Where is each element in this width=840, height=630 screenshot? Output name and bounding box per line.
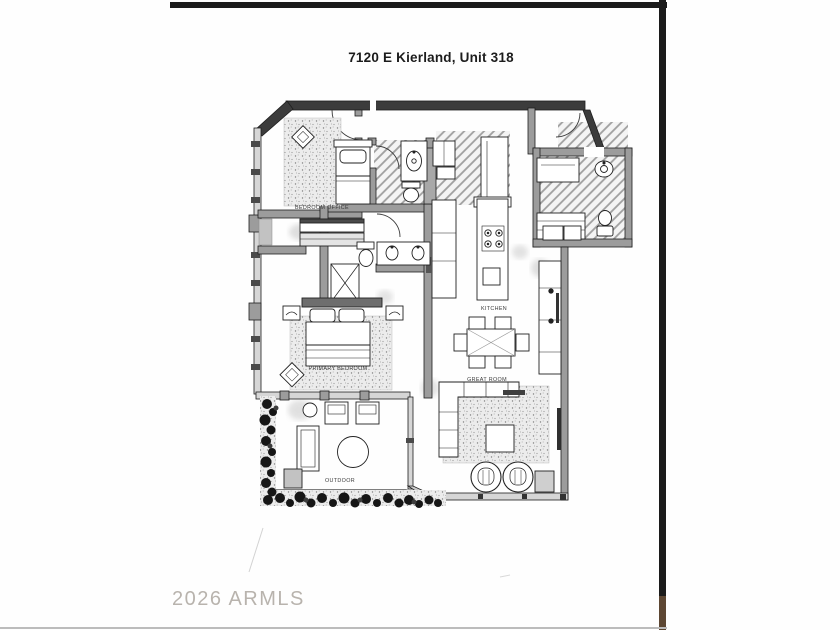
dining-chair [495, 356, 511, 368]
scan-corner-smudge [659, 596, 666, 630]
dining-chair [516, 334, 529, 351]
island-sink [483, 268, 500, 285]
coffee-table [486, 425, 514, 452]
scan-right-bar [659, 0, 666, 630]
entry-foyer [481, 137, 508, 201]
wall-cabinets [539, 261, 561, 374]
dining-chair [495, 317, 511, 329]
scan-top-bar [170, 2, 667, 8]
suite-door-arc [377, 214, 400, 237]
room-label-great-room: GREAT ROOM [467, 377, 507, 383]
armls-watermark: 2026 ARMLS [172, 588, 305, 611]
scan-scratch [500, 575, 510, 577]
outdoor-patio [260, 396, 447, 508]
barrel-chair [503, 462, 533, 492]
scan-bottom-line [0, 627, 667, 629]
shower-closet [331, 264, 359, 302]
bath2-vanity [537, 158, 579, 182]
left-window-wall [254, 128, 261, 394]
dining-chair [454, 334, 467, 351]
nightstand [386, 306, 403, 320]
planter-box [284, 469, 302, 488]
patio-table [338, 437, 369, 468]
scan-scratch [249, 528, 263, 572]
toilet-fixture [357, 242, 374, 267]
top-exterior-wall [286, 101, 585, 110]
tv [557, 408, 561, 450]
barrel-chair [471, 462, 501, 492]
kitchen-counter [432, 200, 456, 298]
side-table [535, 471, 554, 492]
office-bed [334, 140, 372, 204]
scanned-floor-plan-page: 7120 E Kierland, Unit 318 [0, 0, 840, 630]
room-label-primary-bedroom: PRIMARY BEDROOM [309, 366, 368, 372]
nightstand [283, 306, 300, 320]
bedroom-office [259, 118, 372, 246]
dining-chair [469, 356, 485, 368]
patio-side-table [303, 403, 317, 417]
toilet-fixture [402, 182, 420, 202]
coat-closet [481, 137, 508, 201]
dining-chair [469, 317, 485, 329]
dining-set [454, 317, 529, 368]
right-wall [561, 247, 568, 500]
office-rug [284, 118, 341, 206]
floor-plan: BEDROOM OFFICE PRIMARY BEDROOM KITCHEN G… [0, 0, 840, 630]
room-label-kitchen: KITCHEN [481, 306, 507, 312]
kitchen-island [474, 197, 511, 300]
room-label-outdoor: OUTDOOR [325, 478, 355, 484]
room-label-bedroom-office: BEDROOM OFFICE [295, 205, 349, 211]
